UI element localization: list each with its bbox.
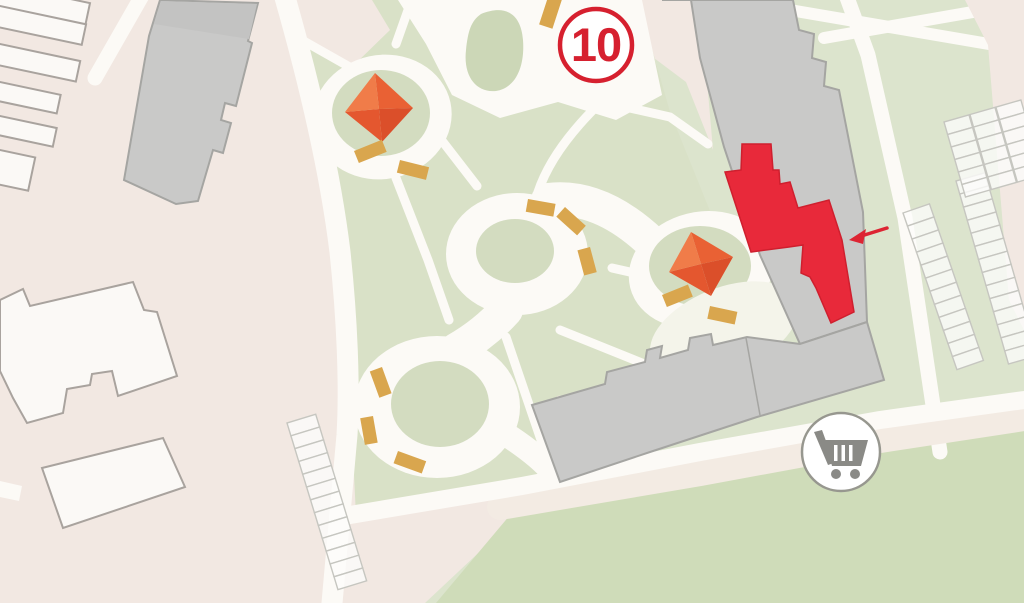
badge-10-marker[interactable]: 10 [560,9,632,81]
badge-number: 10 [571,18,621,71]
site-plan-map: 10 [0,0,1024,603]
map-canvas: 10 [0,0,1024,603]
cart-marker[interactable] [802,413,880,491]
green-island-kidney [466,10,524,91]
